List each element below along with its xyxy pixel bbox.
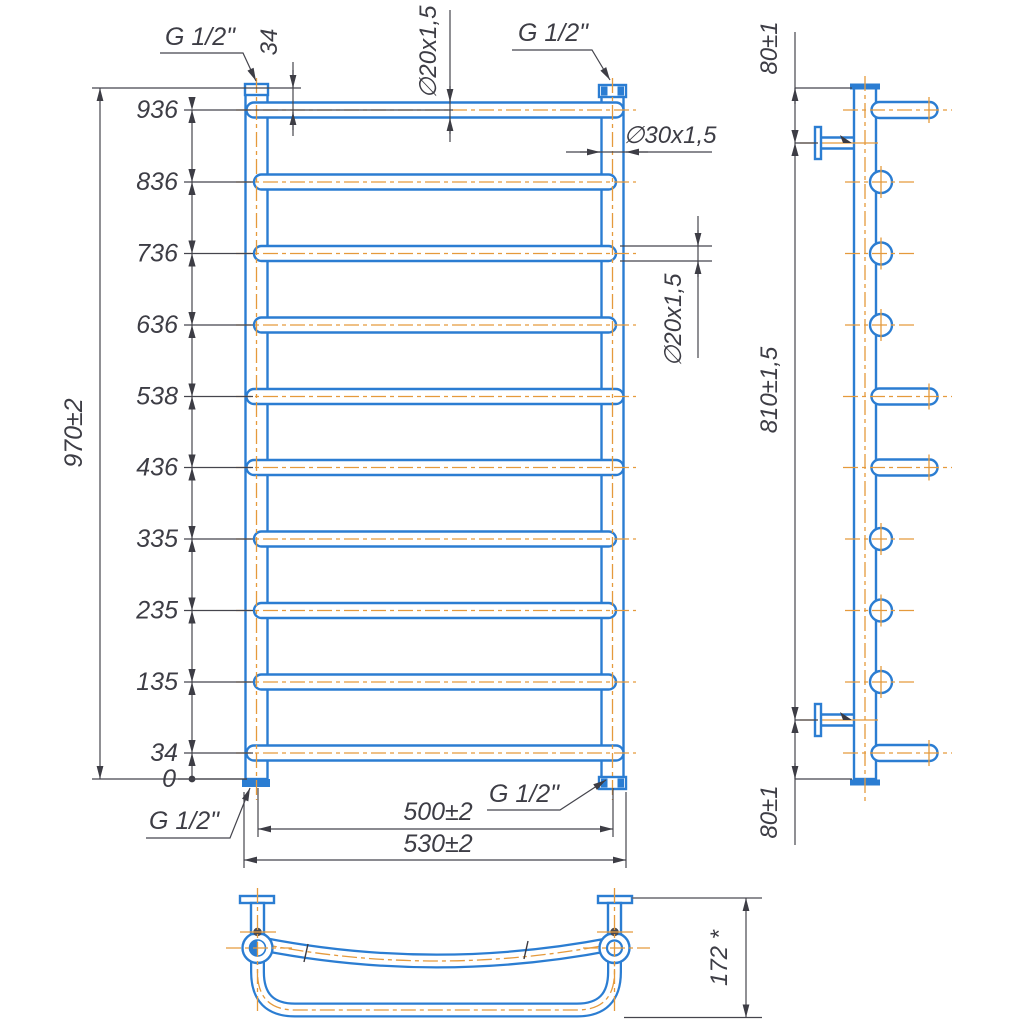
svg-text:G 1/2": G 1/2": [165, 23, 236, 51]
side-bracket-spacing-label: 810±1,5: [756, 346, 783, 433]
level-636: 636: [136, 311, 178, 339]
top-offset-label: 34: [256, 29, 283, 56]
svg-text:G 1/2": G 1/2": [149, 807, 220, 835]
level-235: 235: [135, 597, 178, 625]
top-curved-rung: [262, 941, 612, 962]
height-chain-dimension: [188, 97, 195, 782]
collector-diameter-dimension: ∅30x1,5: [566, 122, 717, 152]
level-335: 335: [136, 525, 178, 553]
front-view: 970±2: [60, 5, 717, 868]
overall-height-label: 970±2: [60, 398, 88, 467]
side-top-offset-label: 80±1: [756, 21, 783, 74]
front-curved-rungs: [254, 175, 616, 690]
bracket-screw-bottom: [840, 712, 852, 720]
rung-diameter-mid-dimension: ∅20x1,5: [620, 216, 712, 366]
collector-diameter-label: ∅30x1,5: [624, 122, 718, 149]
thread-callout-top-right: G 1/2": [512, 19, 610, 80]
thread-callout-top-left: G 1/2": [160, 23, 256, 81]
level-436: 436: [136, 454, 178, 482]
side-view: 80±1 810±1,5 80±1: [756, 21, 952, 845]
side-dimensions: 80±1 810±1,5 80±1: [756, 21, 852, 845]
svg-text:G 1/2": G 1/2": [518, 19, 589, 47]
overall-height-dimension: 970±2: [60, 88, 100, 779]
overall-width-label: 530±2: [403, 830, 472, 858]
level-836: 836: [136, 168, 178, 196]
depth-label: 172 *: [706, 929, 733, 986]
level-0: 0: [162, 765, 176, 793]
towel-radiator-drawing: 970±2: [0, 0, 1024, 1024]
rung-diameter-top-dimension: ∅20x1,5: [415, 5, 450, 142]
thread-callout-bottom-right: G 1/2": [487, 780, 606, 810]
svg-text:G 1/2": G 1/2": [489, 780, 560, 808]
level-538: 538: [136, 383, 178, 411]
side-straight-rungs: [872, 102, 938, 761]
level-135: 135: [136, 668, 178, 696]
level-34: 34: [150, 739, 178, 767]
bracket-screw-top: [840, 135, 852, 143]
technical-drawing-page: 970±2: [0, 0, 1024, 1024]
level-labels: 936 836 736 636 538 436 335 235 135 34 0: [135, 96, 178, 793]
rung-diameter-top-label: ∅20x1,5: [415, 5, 442, 99]
level-936: 936: [136, 96, 178, 124]
thread-callout-bottom-left: G 1/2": [146, 788, 250, 838]
level-736: 736: [136, 240, 178, 268]
top-view: 172 *: [226, 888, 762, 1018]
side-bottom-offset-label: 80±1: [756, 785, 783, 838]
front-straight-rungs: [247, 103, 624, 761]
connection-spacing-label: 500±2: [403, 798, 472, 826]
rung-diameter-mid-label: ∅20x1,5: [660, 273, 687, 367]
depth-dimension: 172 *: [624, 898, 762, 1018]
